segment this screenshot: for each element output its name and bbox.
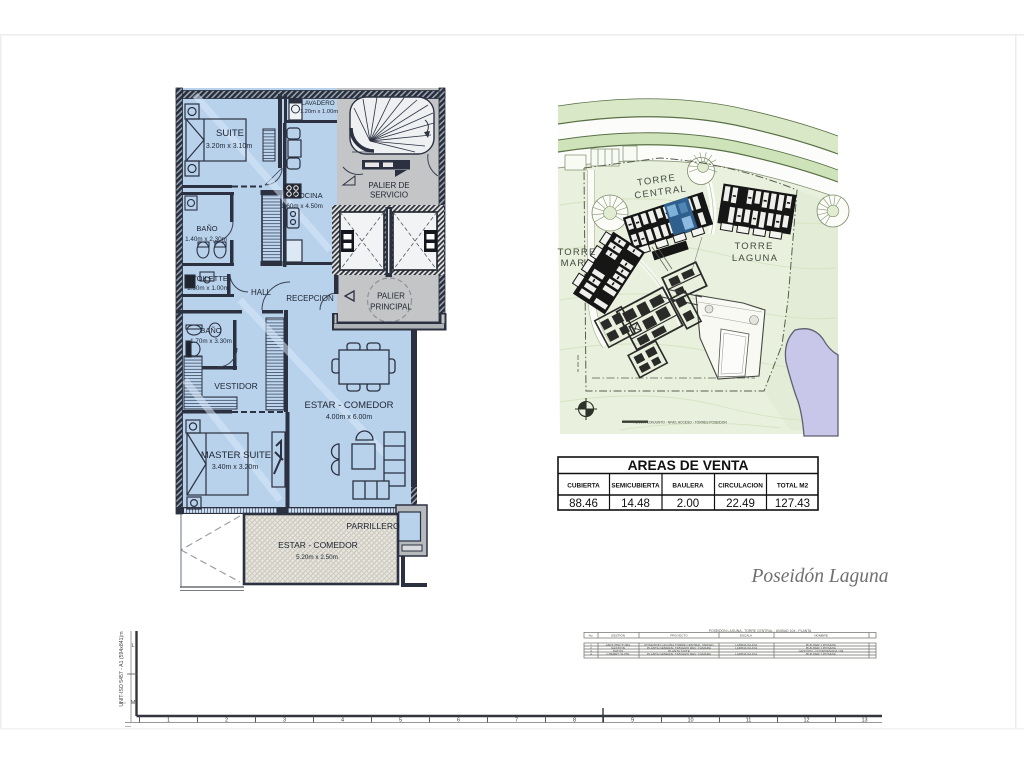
svg-text:PROYECTO: PROYECTO [670,634,688,638]
svg-text:HALL: HALL [251,288,272,297]
svg-text:13: 13 [861,717,867,723]
svg-text:2: 2 [225,717,228,723]
svg-text:1.70m x 3.30m: 1.70m x 3.30m [190,338,232,345]
svg-text:NOMBRE: NOMBRE [814,634,828,638]
svg-text:127.43: 127.43 [775,498,810,510]
svg-text:ESTAR - COMEDOR: ESTAR - COMEDOR [304,400,393,411]
svg-text:22.49: 22.49 [726,498,755,510]
svg-text:TOILETTE: TOILETTE [192,274,228,283]
svg-text:ESCALA: ESCALA [740,634,753,638]
svg-text:No.: No. [589,634,594,638]
svg-text:M: M [131,700,136,706]
svg-text:TORRE: TORRE [734,241,773,252]
svg-text:LAMINA 04-104: LAMINA 04-104 [735,646,757,650]
svg-text:ESTAR - COMEDOR: ESTAR - COMEDOR [278,540,358,550]
svg-text:CIRCULACION: CIRCULACION [718,483,763,490]
svg-text:CUBIERTA: CUBIERTA [567,483,600,490]
svg-text:SUITE: SUITE [216,128,244,139]
svg-text:4: 4 [590,652,592,656]
svg-text:PLANTA GENERAL TABLERO REV. CA: PLANTA GENERAL TABLERO REV. CAMARA [647,652,712,656]
svg-text:VESTIDOR: VESTIDOR [214,381,257,391]
svg-text:RECEPCION: RECEPCION [286,294,334,303]
svg-text:TOTAL M2: TOTAL M2 [777,483,809,490]
svg-text:3.40m x 3.20m: 3.40m x 3.20m [212,464,258,471]
svg-text:LAVADERO: LAVADERO [301,100,334,107]
svg-text:AREAS DE VENTA: AREAS DE VENTA [628,458,749,473]
svg-text:1.40m x 2.30m: 1.40m x 2.30m [185,236,227,243]
svg-text:12: 12 [803,717,809,723]
svg-text:PARRILLERO: PARRILLERO [346,521,400,531]
svg-text:6: 6 [457,717,460,723]
svg-text:MAR: MAR [561,258,586,269]
svg-text:PRINCIPAL: PRINCIPAL [370,303,412,312]
svg-text:3.20m x 3.10m: 3.20m x 3.10m [206,143,252,150]
svg-text:4.00m x 6.00m: 4.00m x 6.00m [326,414,372,421]
svg-text:3: 3 [283,717,286,723]
svg-text:2.00: 2.00 [677,498,699,510]
svg-text:BAÑO: BAÑO [196,224,217,233]
svg-text:1.60m x 4.50m: 1.60m x 4.50m [281,203,323,210]
svg-text:TORRE: TORRE [557,247,596,258]
svg-text:7: 7 [515,717,518,723]
svg-text:MASTER SUITE: MASTER SUITE [201,450,271,461]
svg-text:SERVICIO: SERVICIO [370,191,408,200]
svg-text:10: 10 [687,717,693,723]
svg-text:8: 8 [573,717,576,723]
svg-text:BAULERA: BAULERA [672,483,704,490]
svg-text:PLANTA CONJUNTO - NIVEL ACCE: PLANTA CONJUNTO - NIVEL ACCESO - TORRES … [633,421,727,425]
svg-text:1.50m x 1.00m: 1.50m x 1.00m [187,285,229,292]
svg-text:BAÑO: BAÑO [200,326,221,335]
svg-text:LAMINA 04-104: LAMINA 04-104 [735,652,757,656]
svg-text:14.48: 14.48 [621,498,650,510]
svg-text:5.20m x 2.50m: 5.20m x 2.50m [296,554,338,561]
svg-text:CHERRY SUITE: CHERRY SUITE [607,652,630,656]
svg-text:Poseidón Laguna: Poseidón Laguna [750,566,888,587]
svg-text:COCINA: COCINA [293,191,322,200]
svg-text:GESTION: GESTION [611,634,625,638]
svg-text:11: 11 [746,717,752,723]
svg-text:L: L [131,643,134,649]
svg-text:UNIT-ISO 5457 - A1 (594x841)m: UNIT-ISO 5457 - A1 (594x841)m [119,631,125,706]
svg-text:5: 5 [399,717,402,723]
svg-text:1.20m x 1.00m: 1.20m x 1.00m [300,109,339,115]
svg-text:88.46: 88.46 [569,498,598,510]
svg-text:PALIER DE: PALIER DE [368,181,409,190]
svg-text:4: 4 [341,717,344,723]
svg-text:1: 1 [167,717,170,723]
svg-text:LAGUNA: LAGUNA [732,253,778,264]
svg-text:SEMICUBIERTA: SEMICUBIERTA [611,483,660,490]
svg-text:PALIER: PALIER [377,292,405,301]
svg-text:BUILDER 1 POSADA: BUILDER 1 POSADA [806,652,837,656]
svg-text:9: 9 [631,717,634,723]
